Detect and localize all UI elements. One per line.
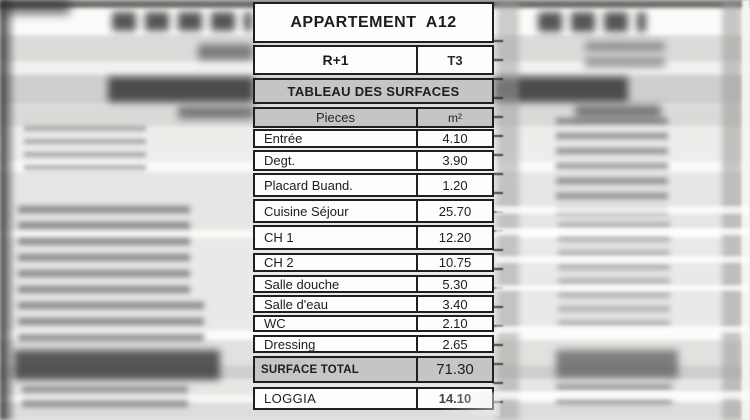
table-row: Dressing 2.65 (253, 335, 494, 353)
room-label: Salle d'eau (255, 297, 418, 311)
column-headers: Pieces m² (253, 107, 494, 128)
table-row: Salle douche 5.30 (253, 275, 494, 293)
blur-text-lines (558, 222, 670, 330)
room-label: Degt. (255, 152, 418, 169)
room-area: 25.70 (418, 201, 492, 221)
rooms-column-header: Pieces (255, 109, 418, 126)
blur-text-block (538, 12, 646, 32)
blur-dense-block (556, 350, 678, 378)
room-label: Dressing (255, 337, 418, 351)
blur-text-lines (22, 386, 188, 414)
loggia-label: LOGGIA (255, 389, 418, 408)
room-label: Placard Buand. (255, 175, 418, 195)
page-left-shadow (0, 0, 16, 420)
surface-table: APPARTEMENT A12 R+1 T3 TABLEAU DES SURFA… (253, 2, 494, 410)
room-label: Entrée (255, 131, 418, 146)
blur-white-bar (495, 326, 750, 333)
table-row: Cuisine Séjour 25.70 (253, 199, 494, 223)
blur-dense-block (14, 350, 220, 380)
surface-total-value: 71.30 (418, 358, 492, 381)
room-area: 10.75 (418, 255, 492, 270)
blur-white-bar (495, 391, 750, 399)
blur-text-block (585, 42, 665, 70)
area-column-header: m² (418, 109, 492, 126)
table-row: Salle d'eau 3.40 (253, 295, 494, 313)
room-area: 3.40 (418, 297, 492, 311)
table-row: Entrée 4.10 (253, 129, 494, 148)
blur-text-block (575, 105, 661, 118)
blur-white-bar (495, 285, 750, 291)
blur-text-block (198, 44, 253, 60)
table-row: CH 1 12.20 (253, 225, 494, 250)
room-label: Salle douche (255, 277, 418, 291)
blur-white-bar (495, 228, 750, 235)
room-label: Cuisine Séjour (255, 201, 418, 221)
blur-text-lines (18, 302, 204, 342)
background-grid-ticks (493, 40, 503, 412)
loggia-row: LOGGIA 14.10 (253, 387, 494, 410)
unit-type-cell: T3 (418, 47, 492, 73)
scanned-document-page: APPARTEMENT A12 R+1 T3 TABLEAU DES SURFA… (0, 0, 750, 420)
surface-total-row: SURFACE TOTAL 71.30 (253, 356, 494, 383)
table-row: WC 2.10 (253, 315, 494, 332)
table-row: Placard Buand. 1.20 (253, 173, 494, 197)
room-label: CH 2 (255, 255, 418, 270)
blur-text-lines (18, 206, 190, 302)
table-row: CH 2 10.75 (253, 253, 494, 272)
blur-heading-block (108, 77, 254, 102)
room-label: WC (255, 317, 418, 330)
room-area: 3.90 (418, 152, 492, 169)
table-row: Degt. 3.90 (253, 150, 494, 171)
blur-text-lines (24, 126, 146, 178)
section-header: TABLEAU DES SURFACES (253, 78, 494, 104)
floor-type-row: R+1 T3 (253, 45, 494, 75)
surface-total-label: SURFACE TOTAL (255, 358, 418, 381)
page-corner-shadow (0, 0, 70, 14)
room-area: 5.30 (418, 277, 492, 291)
room-label: CH 1 (255, 227, 418, 248)
floor-cell: R+1 (255, 47, 418, 73)
blur-text-block (178, 106, 254, 119)
room-area: 1.20 (418, 175, 492, 195)
blur-text-lines (556, 118, 668, 218)
loggia-value: 14.10 (418, 389, 492, 408)
table-title: APPARTEMENT A12 (253, 2, 494, 43)
blur-white-bar (495, 206, 750, 214)
room-area: 4.10 (418, 131, 492, 146)
room-area: 12.20 (418, 227, 492, 248)
blur-text-block (112, 12, 252, 31)
room-area: 2.65 (418, 337, 492, 351)
blur-white-bar (495, 256, 750, 263)
room-area: 2.10 (418, 317, 492, 330)
